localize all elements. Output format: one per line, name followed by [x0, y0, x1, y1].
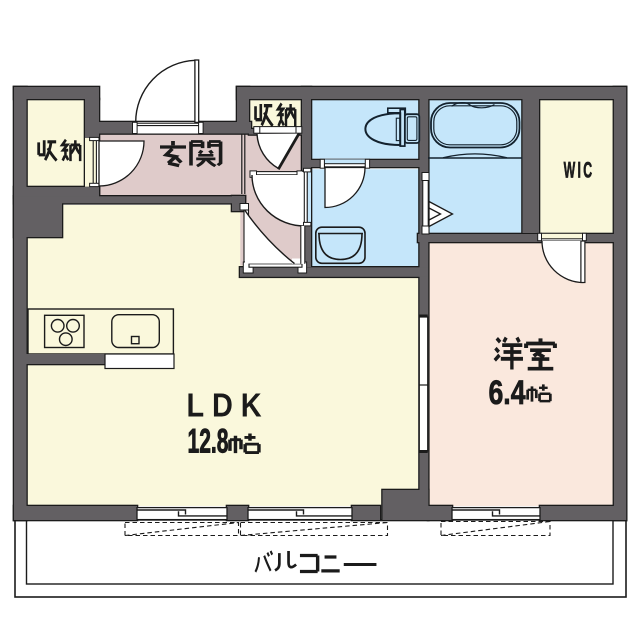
- svg-text:LDK: LDK: [187, 387, 270, 424]
- svg-text:WIC: WIC: [564, 158, 595, 183]
- svg-text:12.8: 12.8: [188, 423, 229, 461]
- svg-text:6.4: 6.4: [489, 374, 526, 412]
